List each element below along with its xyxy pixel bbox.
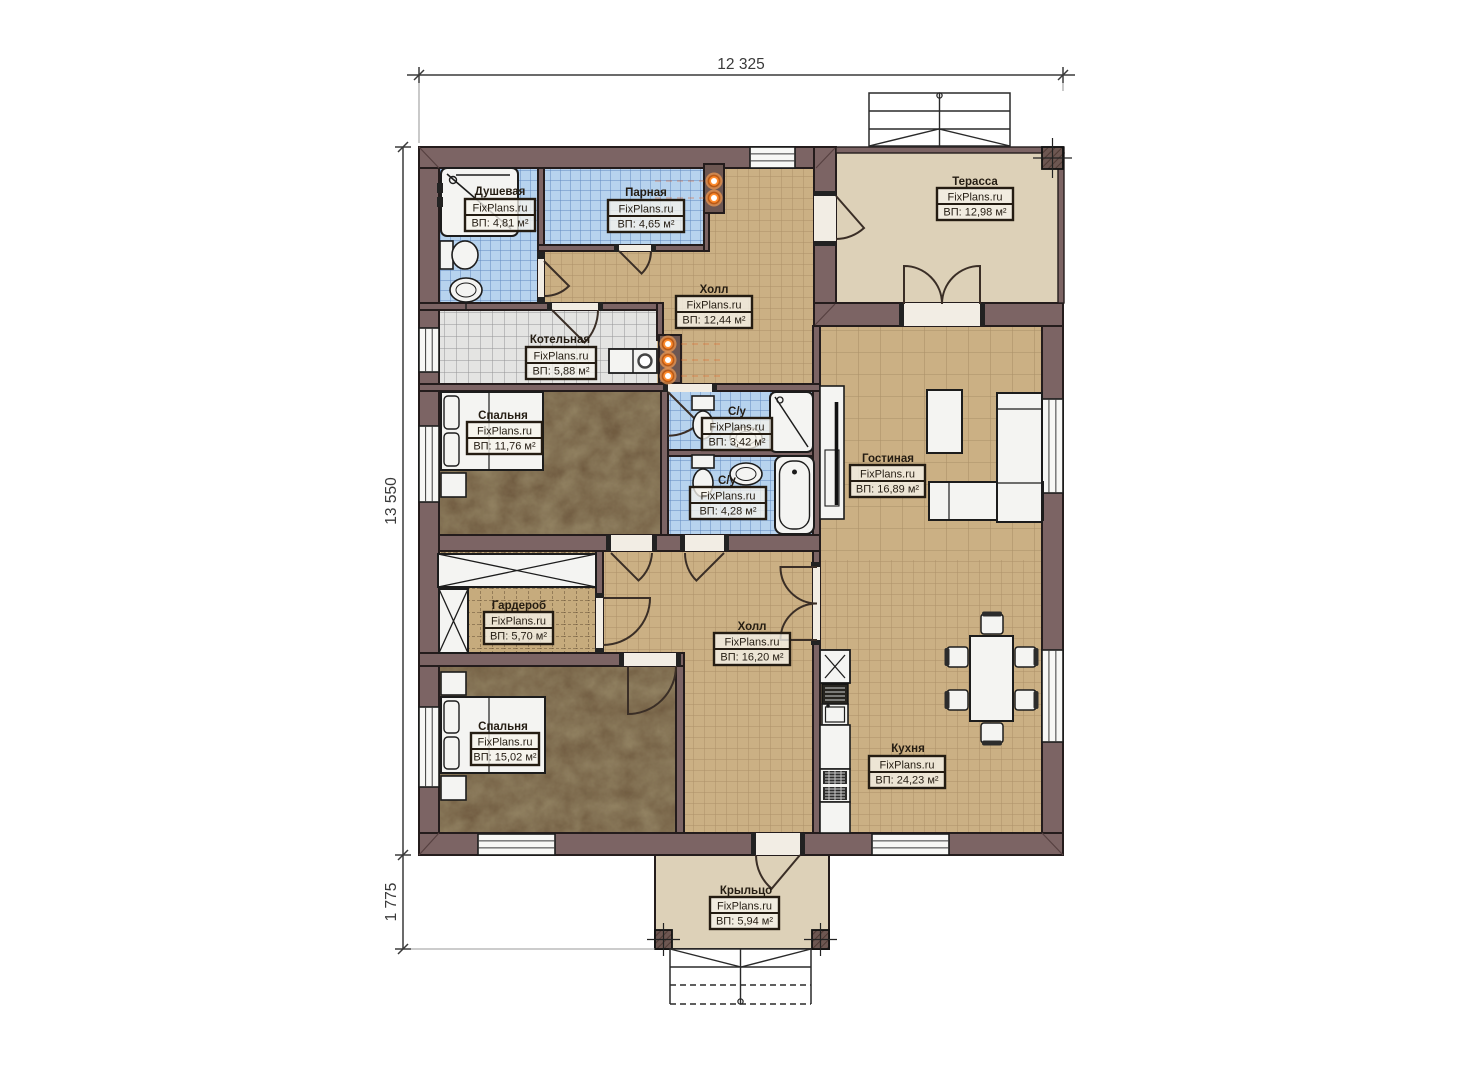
svg-text:ВП: 24,23 м²: ВП: 24,23 м²: [875, 775, 939, 787]
svg-text:FixPlans.ru: FixPlans.ru: [472, 203, 527, 215]
svg-text:Крыльцо: Крыльцо: [720, 885, 772, 897]
svg-text:С/у: С/у: [728, 406, 747, 418]
svg-text:12 325: 12 325: [717, 56, 764, 73]
svg-text:Гостиная: Гостиная: [862, 453, 914, 465]
svg-text:FixPlans.ru: FixPlans.ru: [491, 616, 546, 628]
svg-text:FixPlans.ru: FixPlans.ru: [724, 637, 779, 649]
svg-text:Спальня: Спальня: [478, 721, 528, 733]
svg-text:Спальня: Спальня: [478, 410, 528, 422]
svg-text:13 550: 13 550: [383, 477, 400, 525]
svg-text:ВП: 16,20 м²: ВП: 16,20 м²: [720, 652, 784, 664]
svg-text:ВП: 3,42 м²: ВП: 3,42 м²: [708, 437, 765, 449]
svg-text:ВП: 4,28 м²: ВП: 4,28 м²: [699, 506, 756, 518]
svg-text:FixPlans.ru: FixPlans.ru: [477, 426, 532, 438]
svg-text:Гардероб: Гардероб: [492, 600, 546, 612]
svg-text:ВП: 5,88 м²: ВП: 5,88 м²: [532, 366, 589, 378]
svg-text:FixPlans.ru: FixPlans.ru: [477, 737, 532, 749]
svg-text:Душевая: Душевая: [475, 186, 526, 198]
svg-text:ВП: 11,76 м²: ВП: 11,76 м²: [473, 441, 536, 453]
svg-text:ВП: 5,94 м²: ВП: 5,94 м²: [716, 916, 773, 928]
svg-text:ВП: 4,81 м²: ВП: 4,81 м²: [471, 218, 528, 230]
svg-text:Парная: Парная: [625, 187, 667, 199]
svg-text:Холл: Холл: [738, 621, 767, 633]
svg-text:ВП: 5,70 м²: ВП: 5,70 м²: [490, 631, 547, 643]
svg-text:ВП: 12,44 м²: ВП: 12,44 м²: [682, 315, 746, 327]
svg-text:ВП: 16,89 м²: ВП: 16,89 м²: [856, 484, 920, 496]
svg-text:С/у: С/у: [718, 475, 737, 487]
svg-text:FixPlans.ru: FixPlans.ru: [618, 204, 673, 216]
svg-text:FixPlans.ru: FixPlans.ru: [717, 901, 772, 913]
svg-text:Кухня: Кухня: [891, 743, 925, 755]
svg-text:FixPlans.ru: FixPlans.ru: [709, 422, 764, 434]
svg-text:ВП: 12,98 м²: ВП: 12,98 м²: [943, 207, 1007, 219]
svg-text:Терасса: Терасса: [952, 176, 998, 188]
svg-text:FixPlans.ru: FixPlans.ru: [947, 192, 1002, 204]
svg-text:Котельная: Котельная: [530, 334, 590, 346]
svg-text:Холл: Холл: [700, 284, 729, 296]
svg-text:FixPlans.ru: FixPlans.ru: [533, 351, 588, 363]
svg-text:1 775: 1 775: [383, 883, 400, 922]
svg-text:ВП: 15,02 м²: ВП: 15,02 м²: [473, 752, 537, 764]
svg-text:FixPlans.ru: FixPlans.ru: [700, 491, 755, 503]
svg-text:FixPlans.ru: FixPlans.ru: [879, 760, 934, 772]
svg-text:FixPlans.ru: FixPlans.ru: [686, 300, 741, 312]
svg-text:ВП: 4,65 м²: ВП: 4,65 м²: [617, 219, 674, 231]
svg-text:FixPlans.ru: FixPlans.ru: [860, 469, 915, 481]
